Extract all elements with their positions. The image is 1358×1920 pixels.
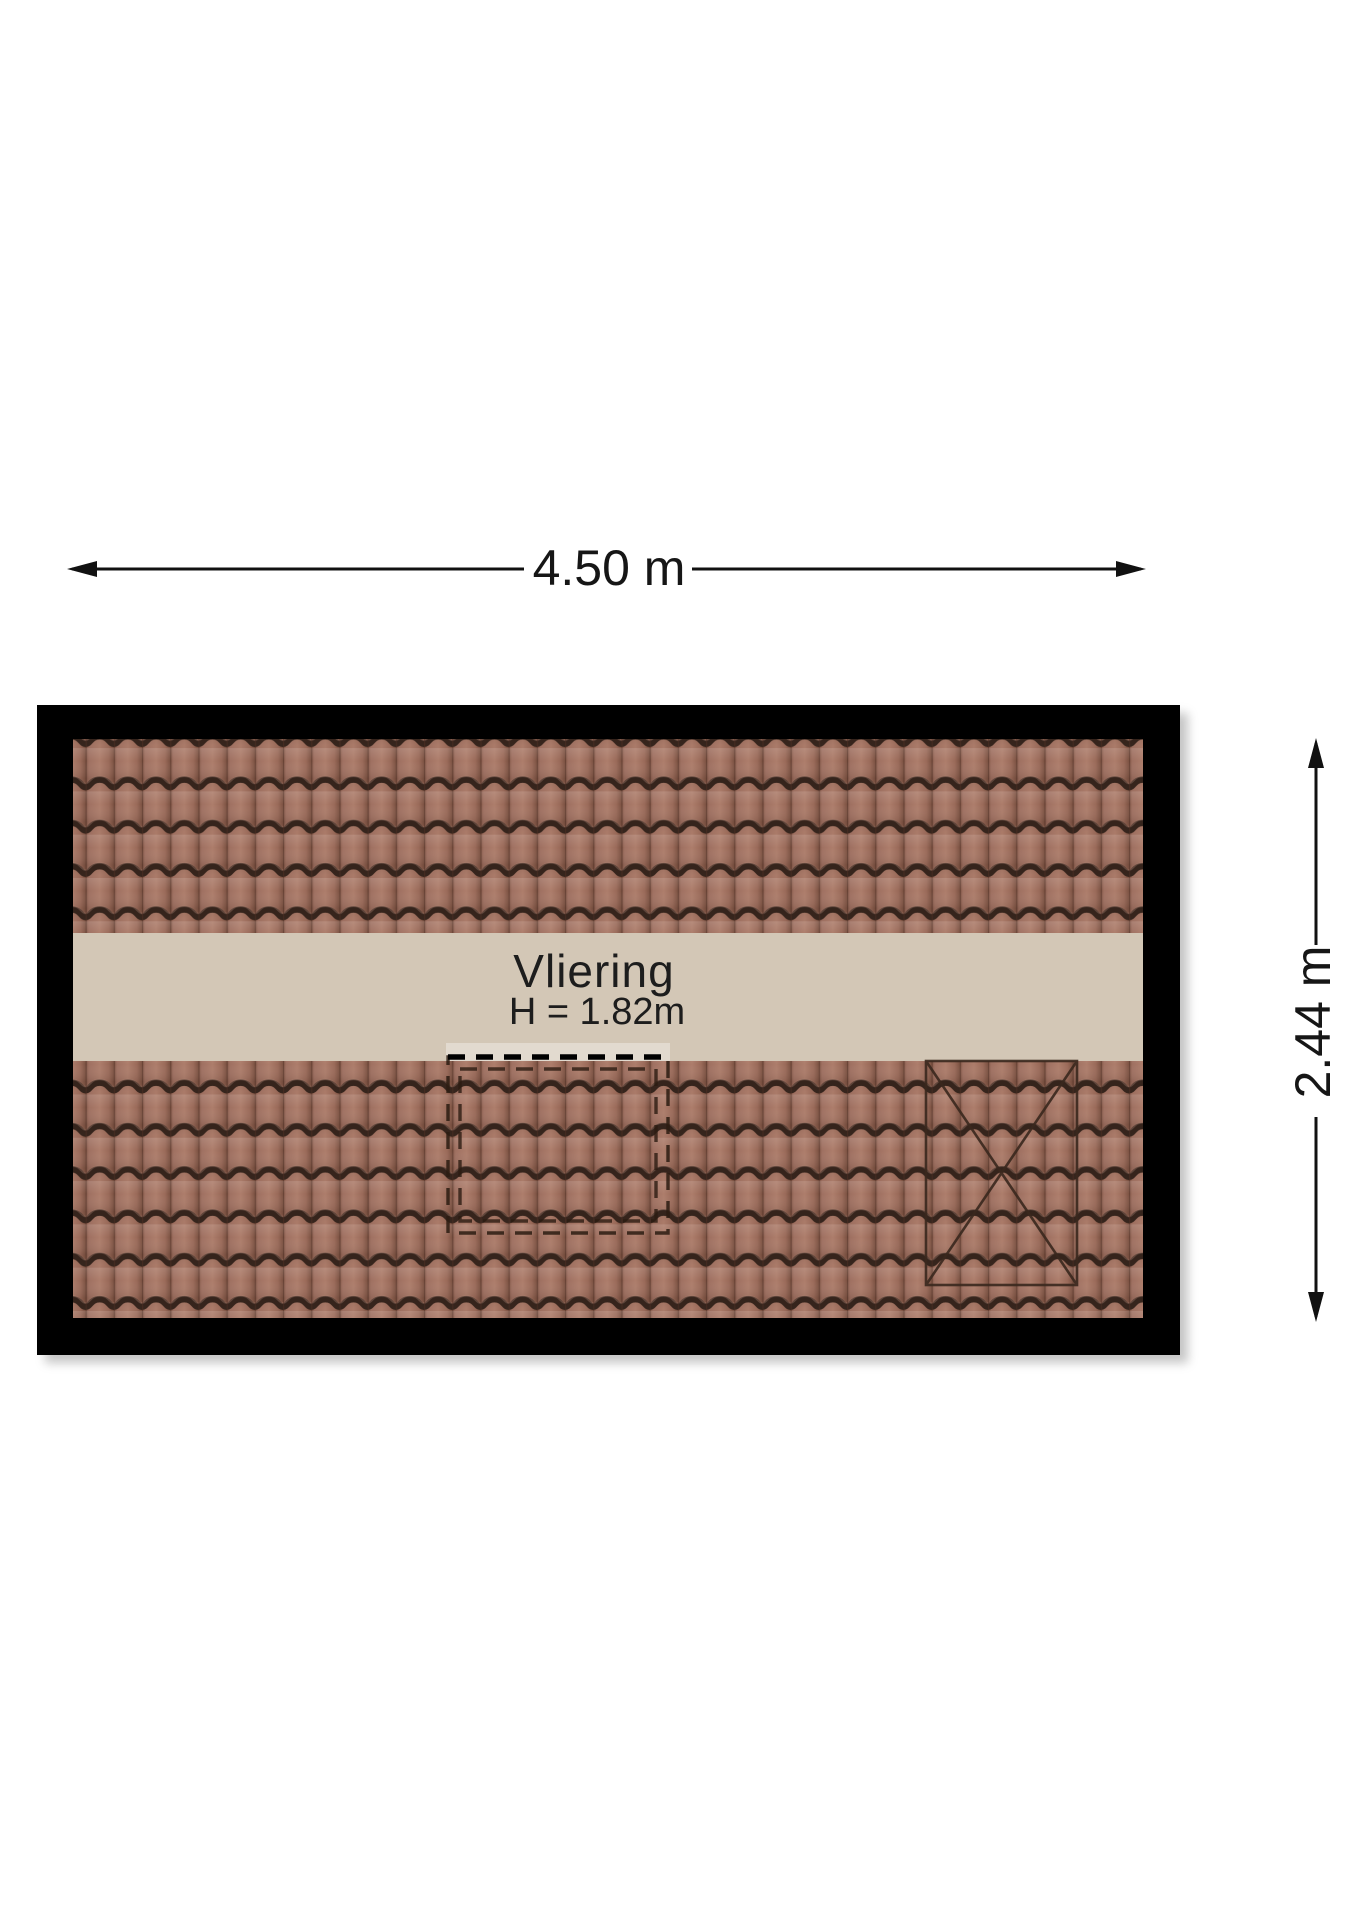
floorplan-canvas: 4.50 m 2.44 m Vliering H = 1.82m xyxy=(0,0,1358,1920)
room-height-label: H = 1.82m xyxy=(509,993,685,1031)
height-dimension-label: 2.44 m xyxy=(1288,946,1338,1099)
floorplan-graphic xyxy=(0,0,1358,1920)
room-name-label: Vliering xyxy=(513,948,674,994)
width-dimension-label: 4.50 m xyxy=(533,543,686,593)
